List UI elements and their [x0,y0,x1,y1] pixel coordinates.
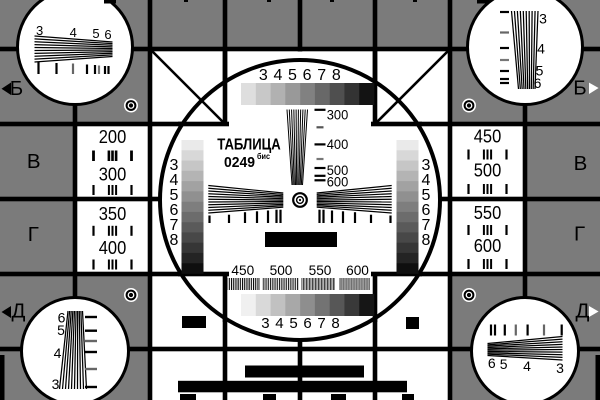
svg-text:бис: бис [257,151,270,161]
svg-text:600: 600 [327,173,349,189]
svg-text:В: В [27,150,41,173]
svg-text:600: 600 [346,263,369,278]
svg-text:6: 6 [303,315,311,332]
svg-text:500: 500 [270,263,293,278]
svg-text:Б: Б [10,77,23,100]
svg-text:7: 7 [317,67,326,84]
svg-text:8: 8 [170,232,179,249]
svg-text:4: 4 [275,315,283,332]
svg-text:400: 400 [327,136,349,152]
svg-text:Г: Г [28,223,39,246]
svg-text:Г: Г [574,223,585,246]
svg-text:4: 4 [537,41,545,57]
svg-text:0249: 0249 [224,155,255,171]
svg-text:4: 4 [70,25,77,40]
svg-text:4: 4 [523,358,531,374]
svg-text:Д: Д [12,300,26,323]
svg-text:400: 400 [99,237,127,258]
svg-text:4: 4 [54,345,62,361]
svg-text:550: 550 [309,263,332,278]
svg-text:600: 600 [474,235,502,256]
svg-text:8: 8 [332,67,341,84]
svg-text:Б: Б [573,77,586,100]
svg-text:3: 3 [556,360,564,376]
svg-text:3: 3 [36,23,43,38]
svg-text:5: 5 [289,315,297,332]
svg-text:200: 200 [99,126,127,147]
svg-text:Д: Д [576,300,590,323]
svg-text:300: 300 [99,164,127,185]
svg-text:7: 7 [317,315,325,332]
svg-text:8: 8 [331,315,339,332]
svg-text:5: 5 [288,67,297,84]
svg-text:6: 6 [488,355,496,371]
svg-text:450: 450 [474,126,502,147]
svg-text:300: 300 [327,107,349,123]
svg-text:3: 3 [261,315,269,332]
svg-text:350: 350 [99,203,127,224]
svg-text:6: 6 [534,75,542,91]
svg-text:5: 5 [500,356,508,372]
svg-text:5: 5 [92,26,99,41]
svg-text:3: 3 [52,376,60,392]
svg-text:ТАБЛИЦА: ТАБЛИЦА [217,136,281,153]
svg-text:3: 3 [539,11,547,27]
svg-text:8: 8 [422,232,431,249]
svg-text:4: 4 [273,67,282,84]
svg-text:В: В [574,152,588,175]
svg-text:6: 6 [303,67,312,84]
svg-text:500: 500 [474,160,502,181]
svg-text:450: 450 [231,263,254,278]
svg-text:3: 3 [259,67,268,84]
svg-text:6: 6 [104,27,111,42]
svg-text:550: 550 [474,202,502,223]
svg-text:5: 5 [57,322,65,338]
